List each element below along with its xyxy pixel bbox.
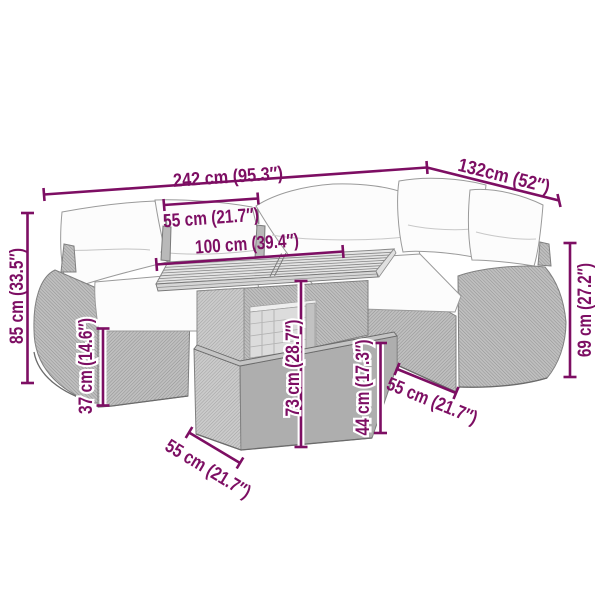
svg-text:73 cm (28.7″): 73 cm (28.7″) <box>283 320 304 417</box>
svg-text:85 cm (33.5″): 85 cm (33.5″) <box>7 248 28 344</box>
svg-text:69 cm (27.2″): 69 cm (27.2″) <box>575 263 596 357</box>
svg-text:37 cm (14.6″): 37 cm (14.6″) <box>76 318 97 414</box>
svg-text:44 cm (17.3″): 44 cm (17.3″) <box>353 340 374 436</box>
